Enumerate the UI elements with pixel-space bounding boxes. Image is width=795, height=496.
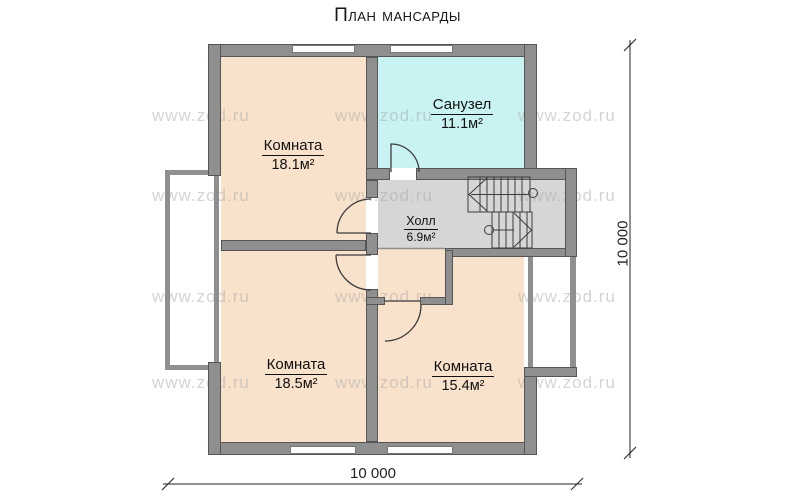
room-area: 11.1м² xyxy=(397,116,527,133)
dimension-tick-bottom-right xyxy=(571,478,583,490)
wall-spine-lower xyxy=(366,289,378,442)
dimension-label-bottom: 10 000 xyxy=(328,465,418,482)
wall-corridor-right xyxy=(445,250,453,305)
window-bottom-right xyxy=(387,446,453,454)
wall-divider-rooms-left xyxy=(221,240,366,251)
room-area: 15.4м² xyxy=(398,378,528,395)
wall-spine-upper xyxy=(366,57,378,172)
window-bottom-left xyxy=(290,446,356,454)
room-name: Комната xyxy=(265,356,328,375)
wall-bathroom-bottom-right xyxy=(416,168,577,180)
dimension-tick-bottom-left xyxy=(162,478,174,490)
wall-extension-right xyxy=(565,168,577,257)
room-area: 18.5м² xyxy=(231,376,361,393)
wall-hall-bottom xyxy=(445,248,577,257)
right-balcony-wall-right xyxy=(570,257,576,367)
left-balcony-wall-bottom xyxy=(165,365,208,370)
bathroom-label: Санузел 11.1м² xyxy=(397,96,527,133)
wall-spine-between-doors xyxy=(366,233,378,255)
room-15-4-label: Комната 15.4м² xyxy=(398,358,528,395)
hall-label: Холл 6.9м² xyxy=(386,212,456,245)
wall-corridor-bottom-left xyxy=(366,297,385,305)
room-18-5-floor xyxy=(221,251,366,442)
right-balcony-wall-bottom xyxy=(524,367,577,377)
window-band-right-wall xyxy=(528,257,533,367)
room-name: Комната xyxy=(262,137,325,156)
wall-top xyxy=(208,44,537,57)
room-18-1-label: Комната 18.1м² xyxy=(228,137,358,174)
window-top-left xyxy=(292,45,355,53)
left-balcony-wall-left xyxy=(165,170,170,370)
room-18-5-label: Комната 18.5м² xyxy=(231,356,361,393)
wall-left-upper xyxy=(208,44,221,176)
right-balcony-floor xyxy=(533,257,570,367)
wall-bathroom-bottom-left xyxy=(366,168,390,180)
room-area: 6.9м² xyxy=(386,231,456,245)
dimension-tick-right-bottom xyxy=(624,447,636,459)
floor-plan-canvas: План мансарды www.zod.ru www.zod.ru www.… xyxy=(0,0,795,496)
room-name: Санузел xyxy=(431,96,493,115)
wall-bottom xyxy=(208,442,537,455)
window-top-right xyxy=(390,45,453,53)
left-balcony-floor xyxy=(170,175,214,365)
room-area: 18.1м² xyxy=(228,157,358,174)
dimension-label-right: 10 000 xyxy=(615,199,632,289)
room-name: Комната xyxy=(432,358,495,377)
wall-spine-above-door xyxy=(366,180,378,198)
window-band-left-wall xyxy=(214,176,219,362)
room-name: Холл xyxy=(404,214,437,230)
wall-left-lower xyxy=(208,362,221,455)
left-balcony-wall-top xyxy=(165,170,208,175)
dimension-tick-right-top xyxy=(624,39,636,51)
plan-title: План мансарды xyxy=(0,5,795,27)
